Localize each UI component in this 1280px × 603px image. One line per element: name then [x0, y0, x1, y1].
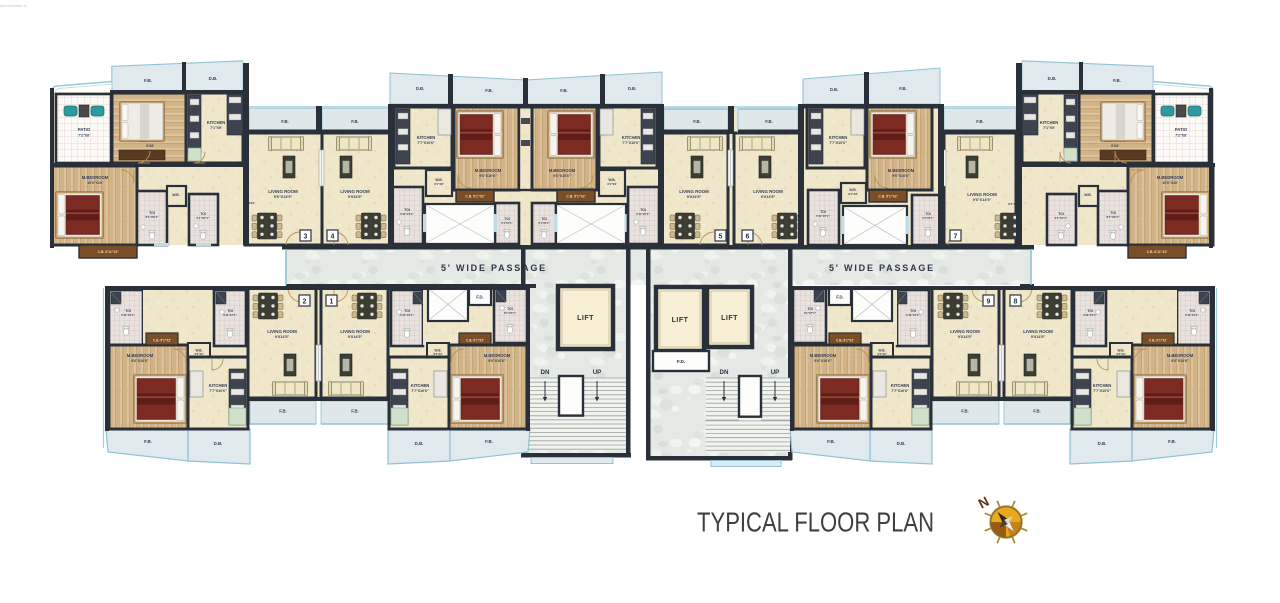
svg-text:www.nobroker.in: www.nobroker.in: [0, 3, 27, 8]
svg-text:C.B.-5’1"X2’: C.B.-5’1"X2’: [153, 339, 171, 343]
svg-text:5'1"X7'1": 5'1"X7'1": [197, 216, 211, 220]
svg-text:7'2"X8': 7'2"X8': [1175, 134, 1187, 138]
svg-text:W.B.: W.B.: [172, 193, 179, 197]
svg-text:D.B.: D.B.: [1098, 441, 1107, 446]
svg-text:7'7"X10'6": 7'7"X10'6": [829, 141, 847, 145]
svg-text:9'6"X14'5": 9'6"X14'5": [274, 195, 293, 199]
svg-text:9'X14'5": 9'X14'5": [1031, 335, 1046, 339]
svg-text:W.B.: W.B.: [1084, 193, 1091, 197]
svg-text:9'6"X10'6": 9'6"X10'6": [479, 174, 497, 178]
svg-text:LIVING ROOM: LIVING ROOM: [679, 189, 709, 194]
svg-text:5'1"X7'1": 5'1"X7'1": [804, 311, 817, 315]
svg-text:5'11"X7'1": 5'11"X7'1": [1185, 313, 1199, 317]
svg-text:5' WIDE PASSAGE: 5' WIDE PASSAGE: [829, 263, 935, 273]
svg-text:9'X8': 9'X8': [1111, 144, 1119, 148]
svg-text:M.BEDROOM: M.BEDROOM: [810, 353, 837, 358]
svg-text:9'X14'5": 9'X14'5": [348, 195, 363, 199]
svg-text:F.B.: F.B.: [351, 409, 358, 414]
svg-text:D.B.: D.B.: [830, 87, 838, 92]
svg-text:3: 3: [304, 233, 308, 240]
svg-text:M.BEDROOM: M.BEDROOM: [82, 175, 109, 180]
svg-text:LIVING ROOM: LIVING ROOM: [1023, 329, 1053, 334]
svg-text:LIFT: LIFT: [577, 315, 594, 322]
svg-text:5'11"X7'1": 5'11"X7'1": [816, 214, 830, 218]
svg-text:F.B.: F.B.: [560, 88, 567, 93]
svg-text:TYPICAL FLOOR PLAN: TYPICAL FLOOR PLAN: [697, 507, 934, 538]
svg-text:F.B.: F.B.: [827, 439, 835, 444]
svg-text:5'1"X7'1": 5'1"X7'1": [1055, 216, 1069, 220]
svg-text:5'11"X7'1": 5'11"X7'1": [223, 313, 237, 317]
svg-text:KITCHEN: KITCHEN: [411, 383, 430, 388]
svg-text:C.B. 5’1"X2’: C.B. 5’1"X2’: [465, 195, 484, 199]
svg-text:3'5"X2': 3'5"X2': [194, 352, 204, 356]
svg-text:KITCHEN: KITCHEN: [1093, 383, 1112, 388]
svg-text:9'X14'5": 9'X14'5": [761, 195, 776, 199]
svg-text:C.B. 8’11"X2’: C.B. 8’11"X2’: [1147, 250, 1168, 254]
svg-text:9'X8': 9'X8': [146, 144, 154, 148]
svg-text:F.B.: F.B.: [1113, 78, 1121, 83]
svg-text:F.B.: F.B.: [765, 119, 772, 124]
svg-text:10'6"X10': 10'6"X10': [1162, 181, 1178, 185]
svg-text:LIVING ROOM: LIVING ROOM: [340, 329, 370, 334]
svg-text:KITCHEN: KITCHEN: [829, 135, 848, 140]
svg-text:D.B.: D.B.: [416, 86, 424, 91]
svg-text:6: 6: [746, 233, 750, 240]
svg-text:7'7"X10'6": 7'7"X10'6": [209, 389, 227, 393]
svg-text:M.BEDROOM: M.BEDROOM: [1167, 353, 1194, 358]
svg-text:4: 4: [331, 233, 335, 240]
svg-text:TOI: TOI: [504, 217, 509, 221]
svg-text:DN: DN: [541, 369, 550, 376]
svg-text:C.B.-5’1"X2’: C.B.-5’1"X2’: [466, 339, 484, 343]
svg-text:9: 9: [987, 298, 991, 305]
svg-text:PATIO: PATIO: [78, 127, 91, 132]
svg-text:5'11"X7'1": 5'11"X7'1": [121, 313, 135, 317]
svg-text:F.B.: F.B.: [144, 78, 152, 83]
svg-text:5' WIDE PASSAGE: 5' WIDE PASSAGE: [441, 263, 547, 273]
svg-text:7'7"X10'6": 7'7"X10'6": [1093, 389, 1111, 393]
svg-text:9'6"X10'6": 9'6"X10'6": [488, 359, 506, 363]
svg-text:UP: UP: [771, 369, 780, 376]
svg-text:M.BEDROOM: M.BEDROOM: [1157, 175, 1184, 180]
svg-text:LIVING ROOM: LIVING ROOM: [340, 189, 370, 194]
svg-text:3'5"X2': 3'5"X2': [877, 352, 887, 356]
svg-text:F.D.: F.D.: [476, 295, 483, 300]
svg-text:C.B.-5’1"X2’: C.B.-5’1"X2’: [836, 339, 854, 343]
svg-text:F.D.: F.D.: [836, 295, 843, 300]
svg-text:9'6"X10'6": 9'6"X10'6": [553, 174, 571, 178]
svg-text:9'6"X10'6": 9'6"X10'6": [892, 174, 910, 178]
svg-text:7'7"X10'6": 7'7"X10'6": [417, 141, 435, 145]
svg-text:PATIO: PATIO: [1175, 127, 1188, 132]
svg-text:TOI: TOI: [541, 217, 546, 221]
svg-text:5: 5: [719, 233, 723, 240]
svg-text:C.B. 5’1"X2’: C.B. 5’1"X2’: [566, 195, 585, 199]
svg-text:TOI: TOI: [925, 212, 930, 216]
svg-text:5'1"X7'1": 5'1"X7'1": [922, 216, 934, 220]
svg-text:KITCHEN: KITCHEN: [891, 383, 910, 388]
svg-text:7'1"X9': 7'1"X9': [210, 126, 222, 130]
svg-text:5'11"X7'1": 5'11"X7'1": [400, 212, 414, 216]
svg-text:UP: UP: [593, 369, 602, 376]
svg-text:LIFT: LIFT: [721, 315, 738, 322]
svg-text:9'X14'5": 9'X14'5": [348, 335, 363, 339]
svg-text:C.B. 5’1"X2’: C.B. 5’1"X2’: [878, 195, 897, 199]
svg-text:F.B.: F.B.: [281, 119, 288, 124]
svg-text:5'11"X7'1": 5'11"X7'1": [906, 313, 920, 317]
svg-text:F.B.: F.B.: [485, 439, 493, 444]
svg-text:9'6"X10'6": 9'6"X10'6": [131, 359, 149, 363]
svg-text:F.B.: F.B.: [693, 119, 700, 124]
svg-text:LIVING ROOM: LIVING ROOM: [267, 329, 297, 334]
svg-text:LIFT: LIFT: [672, 317, 689, 324]
svg-text:F.D.: F.D.: [677, 359, 685, 364]
svg-text:5'11"X7'1": 5'11"X7'1": [400, 313, 414, 317]
svg-text:F.B.: F.B.: [899, 86, 906, 91]
svg-text:7'7"X10'6": 7'7"X10'6": [411, 389, 429, 393]
svg-text:D.B.: D.B.: [209, 76, 218, 81]
svg-text:7'2"X8': 7'2"X8': [78, 134, 90, 138]
svg-text:7'7"X10'6": 7'7"X10'6": [622, 141, 640, 145]
svg-text:9'6"X14'5": 9'6"X14'5": [973, 198, 992, 202]
svg-text:D.B.: D.B.: [415, 441, 424, 446]
svg-text:9'6"X10'6": 9'6"X10'6": [814, 359, 832, 363]
svg-text:KITCHEN: KITCHEN: [1040, 120, 1059, 125]
svg-text:2: 2: [303, 298, 307, 305]
svg-text:C.B.-5’1"X2’: C.B.-5’1"X2’: [1149, 339, 1167, 343]
svg-text:F.B.: F.B.: [1033, 409, 1040, 414]
svg-text:F.B.: F.B.: [1168, 439, 1176, 444]
svg-text:6'1"X5'1": 6'1"X5'1": [1107, 215, 1121, 219]
svg-text:LIVING ROOM: LIVING ROOM: [268, 189, 298, 194]
svg-text:M.BEDROOM: M.BEDROOM: [475, 168, 502, 173]
svg-text:F.B.: F.B.: [279, 409, 286, 414]
svg-text:C.B. 8’11"X2’: C.B. 8’11"X2’: [98, 250, 119, 254]
svg-text:M.BEDROOM: M.BEDROOM: [127, 353, 154, 358]
svg-text:F.B.: F.B.: [976, 119, 983, 124]
svg-text:7: 7: [954, 233, 958, 240]
svg-text:3'5"X2': 3'5"X2': [1116, 352, 1126, 356]
svg-text:F.B.: F.B.: [351, 119, 358, 124]
svg-text:3'1"X2': 3'1"X2': [434, 182, 444, 186]
svg-text:M.BEDROOM: M.BEDROOM: [484, 353, 511, 358]
svg-text:D.B.: D.B.: [1048, 76, 1057, 81]
svg-text:3'1"X2': 3'1"X2': [848, 192, 858, 196]
svg-text:KITCHEN: KITCHEN: [209, 383, 228, 388]
svg-text:F.B.: F.B.: [485, 88, 492, 93]
svg-text:8: 8: [1014, 298, 1018, 305]
svg-text:1: 1: [330, 298, 334, 305]
svg-text:KITCHEN: KITCHEN: [207, 120, 226, 125]
svg-text:9'6"X10'6": 9'6"X10'6": [1171, 359, 1189, 363]
svg-text:LIVING ROOM: LIVING ROOM: [967, 192, 997, 197]
svg-text:10'6"X10': 10'6"X10': [87, 181, 103, 185]
svg-text:3'1"X2': 3'1"X2': [607, 182, 617, 186]
svg-text:9'X14'5": 9'X14'5": [275, 335, 290, 339]
svg-text:F.B.: F.B.: [961, 409, 968, 414]
svg-text:7'7"X10'6": 7'7"X10'6": [891, 389, 909, 393]
svg-text:7'1"X9': 7'1"X9': [1043, 126, 1055, 130]
svg-text:5'1"X7'1": 5'1"X7'1": [504, 311, 517, 315]
svg-text:D.B.: D.B.: [628, 86, 636, 91]
svg-text:5'11"X7'1": 5'11"X7'1": [1083, 313, 1097, 317]
svg-text:F.B.: F.B.: [144, 439, 152, 444]
svg-text:DN: DN: [720, 369, 729, 376]
svg-text:5'11"X7'1": 5'11"X7'1": [636, 212, 650, 216]
svg-text:LIVING ROOM: LIVING ROOM: [753, 189, 783, 194]
svg-text:9'X14'5": 9'X14'5": [958, 335, 973, 339]
svg-text:M.BEDROOM: M.BEDROOM: [888, 168, 915, 173]
svg-text:M.BEDROOM: M.BEDROOM: [549, 168, 576, 173]
svg-text:D.B.: D.B.: [214, 441, 223, 446]
svg-text:KITCHEN: KITCHEN: [622, 135, 641, 140]
svg-text:5'1"X7'1": 5'1"X7'1": [538, 221, 550, 225]
svg-text:5'1"X7'1": 5'1"X7'1": [501, 221, 513, 225]
svg-text:9'X14'5": 9'X14'5": [687, 195, 702, 199]
svg-text:D.B.: D.B.: [897, 441, 906, 446]
svg-text:LIVING ROOM: LIVING ROOM: [950, 329, 980, 334]
svg-text:KITCHEN: KITCHEN: [417, 135, 436, 140]
svg-text:6'1"X5'1": 6'1"X5'1": [146, 215, 160, 219]
svg-text:3'5"X2': 3'5"X2': [433, 352, 443, 356]
